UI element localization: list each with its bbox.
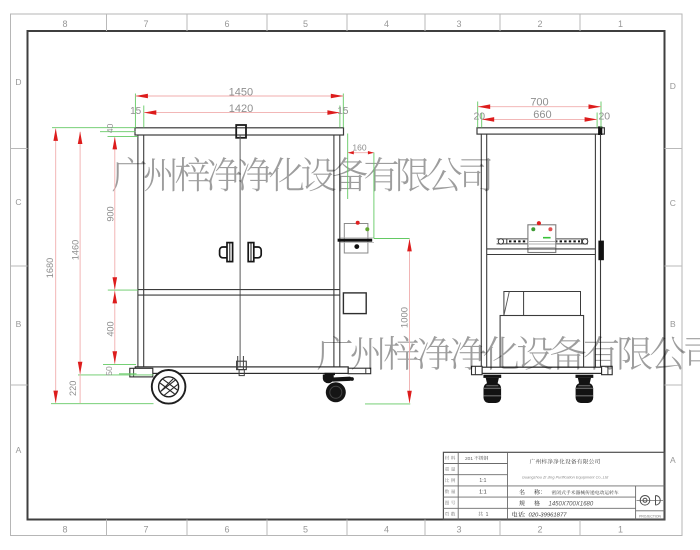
svg-text:1000: 1000 [400, 307, 411, 328]
svg-text:D: D [15, 77, 21, 87]
svg-text:PROJECTION: PROJECTION [639, 514, 661, 518]
svg-text:660: 660 [533, 109, 551, 121]
svg-text:15: 15 [130, 106, 142, 117]
svg-text:50: 50 [104, 366, 114, 376]
svg-text:8: 8 [62, 19, 67, 29]
svg-text:A: A [16, 445, 22, 455]
svg-text:4: 4 [384, 525, 389, 535]
svg-text:1680: 1680 [45, 258, 55, 278]
svg-text:2: 2 [537, 19, 542, 29]
svg-text:15: 15 [337, 106, 349, 117]
svg-text:1450X700X1680: 1450X700X1680 [549, 501, 594, 507]
svg-text:C: C [670, 198, 676, 208]
svg-text:D: D [670, 81, 676, 91]
svg-text:1460: 1460 [71, 240, 81, 260]
svg-text:201: 201 [465, 456, 473, 462]
svg-text:020-39961877: 020-39961877 [529, 513, 568, 519]
svg-text:1:1: 1:1 [479, 489, 487, 495]
svg-text:700: 700 [530, 96, 548, 108]
svg-text:160: 160 [352, 142, 366, 152]
svg-text:7: 7 [143, 19, 148, 29]
svg-text:7: 7 [143, 525, 148, 535]
svg-text:20: 20 [598, 110, 610, 122]
svg-text:20: 20 [473, 110, 485, 122]
svg-text:5: 5 [303, 19, 308, 29]
svg-text:B: B [670, 319, 676, 329]
svg-text:5: 5 [303, 525, 308, 535]
svg-text:3: 3 [456, 19, 461, 29]
svg-text:6: 6 [224, 19, 229, 29]
svg-text:400: 400 [105, 321, 115, 336]
svg-text:4: 4 [384, 19, 389, 29]
svg-text:1: 1 [486, 512, 489, 518]
svg-text:6: 6 [224, 525, 229, 535]
svg-text:1:1: 1:1 [479, 478, 486, 484]
svg-text:Guangzhou Zi Jing Purification: Guangzhou Zi Jing Purification Equipment… [522, 475, 609, 480]
svg-text:1420: 1420 [229, 103, 253, 115]
svg-text:3: 3 [456, 525, 461, 535]
svg-text:1: 1 [618, 525, 623, 535]
svg-text:220: 220 [68, 381, 78, 396]
svg-text:1: 1 [618, 19, 623, 29]
svg-text:900: 900 [105, 206, 115, 221]
svg-text:8: 8 [62, 525, 67, 535]
svg-text:C: C [15, 197, 21, 207]
svg-text:A: A [670, 455, 676, 465]
svg-text:1450: 1450 [229, 87, 253, 99]
svg-text:B: B [16, 319, 22, 329]
svg-text:2: 2 [537, 525, 542, 535]
svg-text:40: 40 [105, 123, 115, 133]
